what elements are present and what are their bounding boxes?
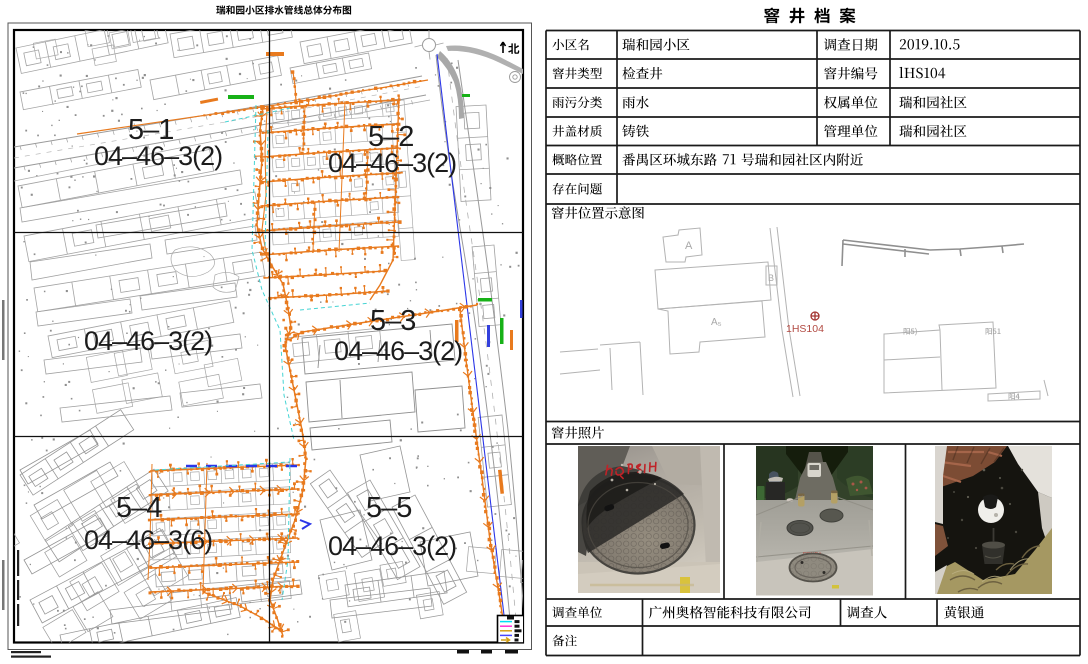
svg-text:A₅: A₅ <box>711 317 722 328</box>
svg-text:04–46–3(2): 04–46–3(2) <box>84 326 212 356</box>
svg-text:04–46–3(2): 04–46–3(2) <box>328 148 456 178</box>
svg-text:04–46–3(2): 04–46–3(2) <box>334 336 462 366</box>
svg-text:04–46–3(2): 04–46–3(2) <box>328 531 456 561</box>
svg-text:B: B <box>768 273 774 283</box>
svg-text:04–46–3(6): 04–46–3(6) <box>84 525 212 555</box>
svg-text:5–4: 5–4 <box>116 492 162 524</box>
svg-text:1HS104: 1HS104 <box>786 323 824 335</box>
svg-text:5–5: 5–5 <box>366 492 411 524</box>
svg-text:5–3: 5–3 <box>370 305 415 337</box>
svg-text:04–46–3(2): 04–46–3(2) <box>94 141 222 171</box>
svg-text:A: A <box>685 240 693 252</box>
